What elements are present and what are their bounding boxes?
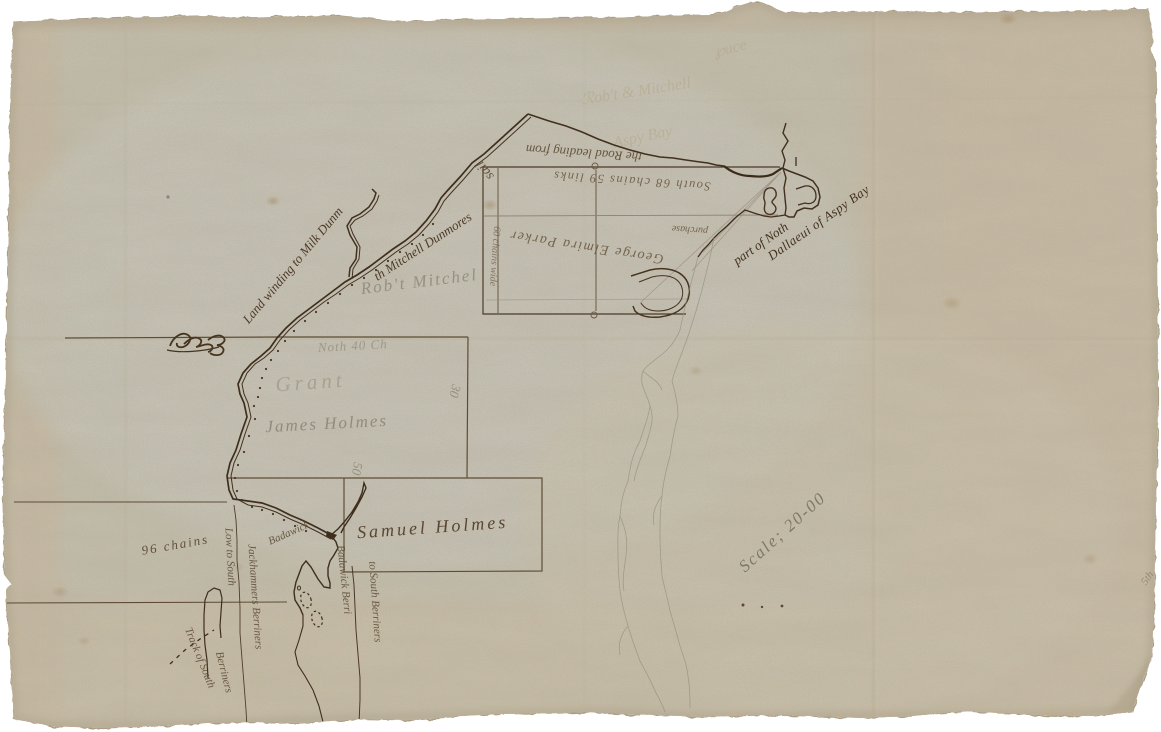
svg-text:Grant: Grant xyxy=(275,368,347,397)
